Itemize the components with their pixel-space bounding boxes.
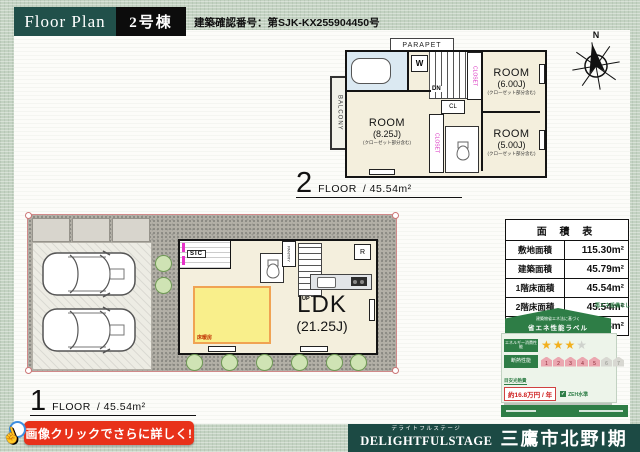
room-600-size: (6.00J) — [497, 79, 525, 89]
area-row-label: 1階床面積 — [506, 279, 565, 298]
zeh-label: ZEH水準 — [568, 391, 588, 398]
insulation-row: 断熱性能 1 2 3 4 5 6 7 — [504, 355, 614, 368]
brand-block: デライトフルステージ DELIGHTFULSTAGE — [360, 427, 492, 450]
refrigerator-box: R — [354, 244, 371, 260]
energy-label-body: エネルギー消費性能 ★★★★ 断熱性能 1 2 3 4 5 6 7 目安光熱費 — [501, 333, 617, 403]
kitchen-counter — [310, 274, 372, 290]
image-click-cta-button[interactable]: 画像クリックでさらに詳しく! — [24, 421, 194, 445]
estimated-cost: 約16.8万円 / 年 — [504, 387, 556, 401]
garage-tile — [72, 218, 110, 242]
closet-bottom-label: CLOSET — [434, 133, 440, 153]
room-500-note: (クローゼット部分含む) — [488, 151, 536, 157]
energy-consumption-label: エネルギー消費性能 — [504, 339, 538, 352]
insulation-scale: 1 2 3 4 5 6 7 — [541, 357, 624, 367]
brand-furigana: デライトフルステージ — [360, 427, 492, 433]
garage-back-wall — [32, 218, 150, 242]
area-row-label: 建築面積 — [506, 260, 565, 279]
compass-north-label: N — [568, 30, 624, 40]
house-scale-icon: 7 — [613, 357, 624, 367]
area-table-title: 面 積 表 — [506, 220, 629, 241]
tree-icon — [155, 255, 172, 272]
floor-heating-label: 床暖房 — [197, 334, 212, 341]
floor1-number: 1 — [30, 390, 46, 413]
confirmation-number: 建築確認番号：第SJK-KX255904450号 — [194, 15, 380, 30]
house-scale-icon: 3 — [565, 357, 576, 367]
closet-mark — [182, 243, 185, 252]
washer-box: W — [411, 55, 428, 72]
window-marker — [300, 346, 328, 352]
brand-name: DELIGHTFULSTAGE — [360, 434, 492, 448]
floor1-site-plan: SIC PANTRY UP R 床暖房 LDK (21.25J) — [27, 214, 397, 372]
area-row-label: 敷地面積 — [506, 241, 565, 260]
floor2-caption: 2 FLOOR / 45.54m² — [296, 172, 462, 198]
floor1-outline: SIC PANTRY UP R 床暖房 LDK (21.25J) — [178, 239, 378, 355]
floor2-number: 2 — [296, 172, 312, 195]
zeh-badge: ✓ ZEH水準 — [560, 391, 588, 398]
renewable-note: 再エネ設備なし — [595, 302, 630, 309]
pantry: PANTRY — [282, 241, 296, 267]
ldk-room: LDK (21.25J) — [272, 293, 372, 334]
sink-icon — [317, 277, 336, 288]
star-empty-icon: ★ — [576, 338, 587, 352]
table-row: 敷地面積 115.30m² — [506, 241, 629, 260]
house-scale-icon: 6 — [601, 357, 612, 367]
sic-label: SIC — [187, 250, 206, 258]
floor2-word: FLOOR — [318, 183, 357, 195]
compass-icon: N — [568, 30, 624, 98]
footer-brand-bar: デライトフルステージ DELIGHTFULSTAGE 三鷹市北野Ⅰ期 — [348, 424, 640, 452]
room-500: ROOM (5.00J) (クローゼット部分含む) — [483, 114, 540, 171]
area-row-value: 45.79m² — [565, 260, 629, 279]
window-marker — [208, 346, 236, 352]
area-row-value: 45.54m² — [565, 279, 629, 298]
pantry-label: PANTRY — [287, 246, 292, 262]
room-600: ROOM (6.00J) (クローゼット部分含む) — [483, 52, 540, 110]
area-row-value: 115.30m² — [565, 241, 629, 260]
room-500-size: (5.00J) — [497, 140, 525, 150]
toilet-icon — [457, 141, 468, 158]
tree-icon — [186, 354, 203, 371]
room-825-size: (8.25J) — [373, 129, 401, 139]
page-title: Floor Plan — [14, 7, 116, 36]
balcony-label: BALCONY — [337, 95, 343, 131]
floor1-word: FLOOR — [52, 401, 91, 413]
floor2-outline: W DN CL CLOSET ROOM (6.00J) (クローゼット部分含む)… — [345, 50, 547, 178]
closet-mark — [182, 256, 185, 265]
toilet-room-2f — [445, 126, 479, 173]
room-825-name: ROOM — [369, 117, 405, 129]
room-825-note: (クローゼット部分含む) — [363, 140, 411, 146]
house-scale-icon: 5 — [589, 357, 600, 367]
bathroom — [347, 52, 409, 92]
wall-divider-rooms — [483, 111, 540, 113]
corner-marker — [392, 367, 399, 374]
room-600-note: (クローゼット部分含む) — [488, 90, 536, 96]
tree-icon — [155, 277, 172, 294]
closet-right-label: CLOSET — [472, 66, 478, 86]
floor1-caption: 1 FLOOR / 45.54m² — [30, 390, 196, 416]
tree-icon — [350, 354, 367, 371]
energy-label-roof: 建築物省エネ法に基づく 省エネ性能ラベル — [505, 308, 611, 333]
check-icon: ✓ — [560, 391, 566, 397]
compass-rose-icon — [571, 40, 621, 92]
table-row: 1階床面積 45.54m² — [506, 279, 629, 298]
car-icon — [40, 249, 138, 299]
shoe-closet-room: SIC — [180, 241, 231, 269]
stove-icon — [351, 277, 367, 286]
tree-icon — [221, 354, 238, 371]
room-600-name: ROOM — [493, 67, 529, 79]
ldk-name: LDK — [272, 293, 372, 317]
room-825: ROOM (8.25J) (クローゼット部分含む) — [347, 92, 427, 171]
tree-icon — [326, 354, 343, 371]
corner-marker — [25, 212, 32, 219]
house-scale-icon: 1 — [541, 357, 552, 367]
car-icon — [40, 305, 138, 355]
tree-icon — [256, 354, 273, 371]
floorplan-flyer: Floor Plan 2号棟 建築確認番号：第SJK-KX255904450号 … — [0, 0, 640, 452]
toilet-room-1f — [260, 253, 284, 283]
tree-icon — [291, 354, 308, 371]
window-marker — [369, 299, 375, 321]
garage-tile — [112, 218, 150, 242]
energy-consumption-row: エネルギー消費性能 ★★★★ — [504, 336, 614, 354]
window-marker — [539, 130, 545, 150]
closet-bottom: CLOSET — [429, 114, 444, 173]
star-rating: ★★★★ — [541, 336, 587, 354]
project-name: 三鷹市北野Ⅰ期 — [501, 425, 628, 451]
house-scale-icon: 4 — [577, 357, 588, 367]
floor-heating-area: 床暖房 — [193, 286, 271, 344]
energy-performance-label: 再エネ設備なし 建築物省エネ法に基づく 省エネ性能ラベル エネルギー消費性能 ★… — [499, 302, 630, 418]
house-scale-icon: 2 — [553, 357, 564, 367]
insulation-label: 断熱性能 — [504, 355, 538, 368]
floor2-plan: PARAPET BALCONY W DN CL CLOSET ROOM (6.0… — [330, 38, 546, 174]
bathtub-icon — [351, 58, 391, 84]
cost-row: 約16.8万円 / 年 ✓ ZEH水準 — [504, 387, 614, 401]
table-row: 建築面積 45.79m² — [506, 260, 629, 279]
building-number-badge: 2号棟 — [116, 7, 186, 36]
energy-label-footer-bar — [501, 405, 628, 417]
toilet-icon — [267, 260, 278, 277]
floor2-area: / 45.54m² — [363, 183, 412, 195]
energy-label-title: 省エネ性能ラベル — [505, 322, 611, 332]
window-marker — [539, 64, 545, 84]
floor1-area: / 45.54m² — [97, 401, 146, 413]
room-500-name: ROOM — [493, 128, 529, 140]
ldk-size: (21.25J) — [272, 318, 372, 334]
star-filled-icon: ★★★ — [541, 338, 576, 352]
corner-marker — [25, 367, 32, 374]
corner-marker — [392, 212, 399, 219]
closet-right: CLOSET — [467, 52, 482, 100]
closet-cl-box: CL — [441, 100, 465, 114]
garage-tile — [32, 218, 70, 242]
stairs-dn-label: DN — [431, 86, 442, 92]
cost-label: 目安光熱費 — [504, 378, 527, 385]
